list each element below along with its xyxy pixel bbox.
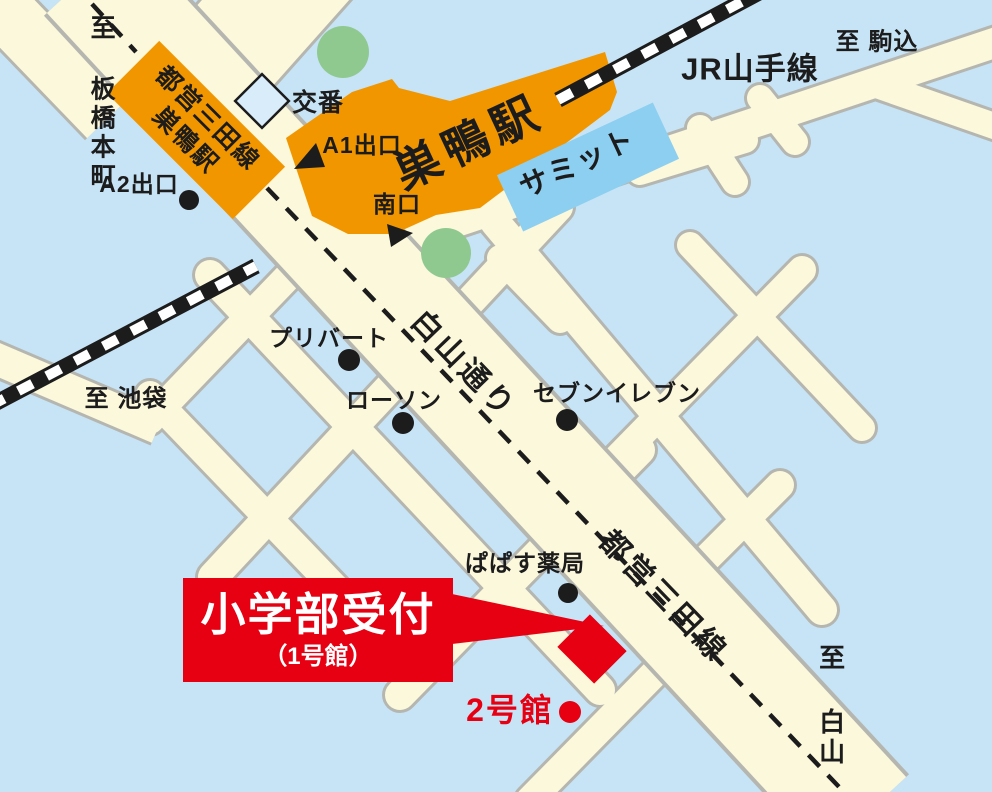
direction-hakusan: 至 白山 <box>816 644 843 768</box>
direction-ikebukuro: 至 池袋 <box>85 386 168 411</box>
direction-komagome: 至 駒込 <box>836 29 919 54</box>
lawson-label: ローソン <box>346 388 442 412</box>
a2-exit-label: A2出口 <box>99 172 178 196</box>
privert-label: プリバート <box>269 326 389 350</box>
direction-itabashi-honcho: 至 板橋本町 <box>88 15 114 192</box>
seven-eleven-dot <box>556 409 578 431</box>
tree-circle-south <box>421 228 471 278</box>
tree-circle-north <box>317 26 369 78</box>
seven-eleven-label: セブンイレブン <box>533 381 701 405</box>
building2-dot <box>559 701 581 723</box>
jr-yamanote-line-label: JR山手線 <box>681 54 819 87</box>
lawson-dot <box>392 412 414 434</box>
reception-banner: 小学部受付 （1号館） <box>183 578 453 682</box>
reception-banner-subtitle: （1号館） <box>263 645 372 669</box>
papasu-pharmacy-label: ぱぱす薬局 <box>465 551 585 575</box>
building2-label: 2号館 <box>466 694 554 728</box>
access-map: 至 板橋本町 A2出口 交番 A1出口 南口 巣鴨駅 サミット JR山手線 至 … <box>0 0 992 792</box>
koban-label: 交番 <box>292 90 344 116</box>
a2-exit-dot <box>179 190 199 210</box>
reception-banner-title: 小学部受付 <box>200 592 435 637</box>
papasu-pharmacy-dot <box>558 583 578 603</box>
privert-dot <box>338 349 360 371</box>
